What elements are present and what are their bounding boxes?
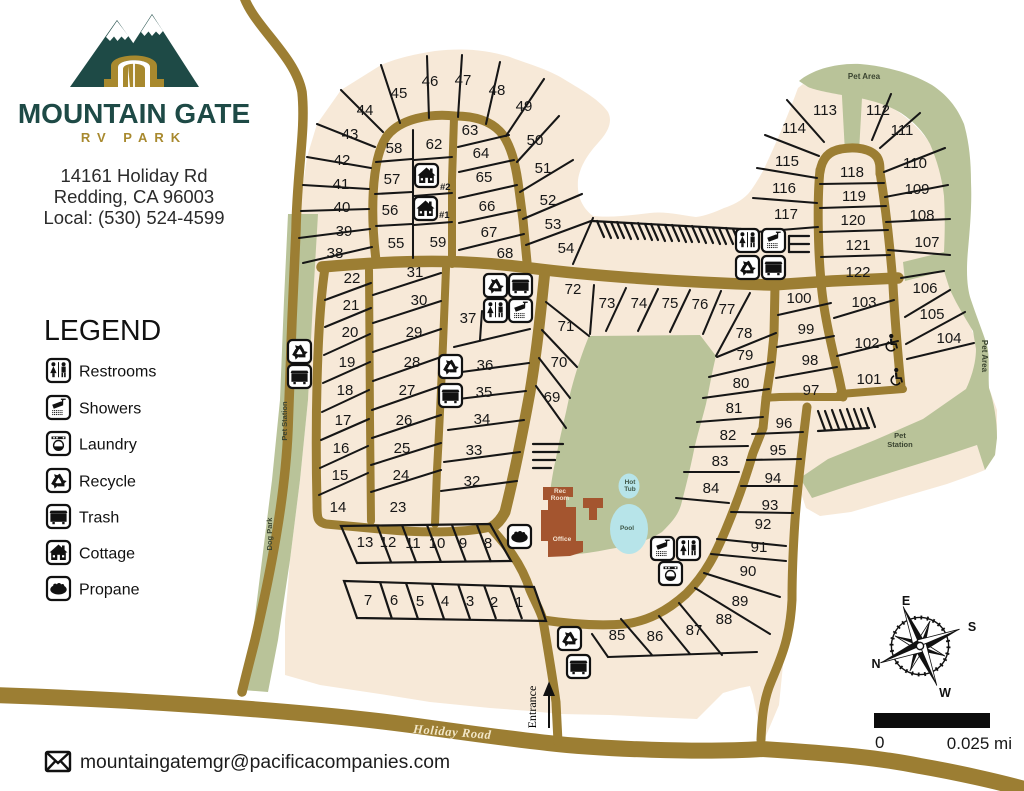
svg-text:Pet Area: Pet Area <box>848 72 881 81</box>
svg-text:Redding, CA 96003: Redding, CA 96003 <box>54 186 214 207</box>
svg-text:80: 80 <box>733 375 750 392</box>
svg-text:59: 59 <box>430 234 447 251</box>
svg-text:81: 81 <box>726 400 743 417</box>
svg-text:2: 2 <box>490 594 498 611</box>
svg-text:45: 45 <box>391 85 408 102</box>
svg-text:85: 85 <box>609 627 626 644</box>
svg-text:52: 52 <box>540 192 557 209</box>
svg-text:12: 12 <box>380 534 397 551</box>
svg-text:11: 11 <box>405 535 421 552</box>
svg-text:63: 63 <box>462 122 479 139</box>
svg-text:65: 65 <box>476 169 493 186</box>
svg-text:92: 92 <box>755 516 772 533</box>
svg-text:31: 31 <box>407 264 424 281</box>
svg-text:35: 35 <box>476 384 493 401</box>
svg-text:38: 38 <box>327 245 344 262</box>
svg-text:84: 84 <box>703 480 720 497</box>
svg-text:18: 18 <box>337 382 354 399</box>
svg-text:Cottage: Cottage <box>79 546 135 563</box>
svg-text:119: 119 <box>842 188 866 205</box>
svg-text:62: 62 <box>426 136 443 153</box>
svg-text:20: 20 <box>342 324 359 341</box>
svg-text:Recycle: Recycle <box>79 474 136 491</box>
svg-text:Tub: Tub <box>624 486 635 493</box>
svg-text:107: 107 <box>914 234 939 251</box>
svg-text:43: 43 <box>342 126 359 143</box>
svg-text:N: N <box>871 657 880 671</box>
svg-text:50: 50 <box>527 132 544 149</box>
svg-text:8: 8 <box>484 535 492 552</box>
svg-text:mountaingatemgr@pacificacompan: mountaingatemgr@pacificacompanies.com <box>80 752 450 773</box>
svg-text:Propane: Propane <box>79 582 140 599</box>
svg-text:Rec: Rec <box>554 488 566 495</box>
svg-text:RV PARK: RV PARK <box>81 130 187 145</box>
svg-text:108: 108 <box>909 207 934 224</box>
svg-text:E: E <box>902 594 910 608</box>
svg-text:82: 82 <box>720 427 737 444</box>
svg-text:10: 10 <box>429 535 446 552</box>
svg-text:102: 102 <box>854 335 879 352</box>
svg-text:Laundry: Laundry <box>79 437 137 454</box>
svg-text:Office: Office <box>553 536 572 543</box>
svg-text:Restrooms: Restrooms <box>79 364 156 381</box>
svg-text:71: 71 <box>558 318 575 335</box>
svg-text:121: 121 <box>845 237 870 254</box>
svg-text:46: 46 <box>422 73 439 90</box>
svg-text:21: 21 <box>343 297 360 314</box>
svg-text:86: 86 <box>647 628 664 645</box>
svg-text:13: 13 <box>357 534 374 551</box>
svg-text:25: 25 <box>394 440 411 457</box>
svg-text:103: 103 <box>851 294 876 311</box>
svg-text:W: W <box>939 686 951 700</box>
svg-text:104: 104 <box>936 330 961 347</box>
svg-text:LEGEND: LEGEND <box>44 315 161 347</box>
svg-text:Dog Park: Dog Park <box>265 517 274 551</box>
svg-text:51: 51 <box>535 160 552 177</box>
svg-text:14161 Holiday Rd: 14161 Holiday Rd <box>60 165 207 186</box>
svg-text:76: 76 <box>692 296 709 313</box>
svg-text:30: 30 <box>411 292 428 309</box>
svg-text:#2: #2 <box>440 182 451 193</box>
svg-text:Pet: Pet <box>894 431 906 440</box>
svg-text:83: 83 <box>712 453 729 470</box>
svg-text:93: 93 <box>762 497 779 514</box>
svg-text:3: 3 <box>466 593 474 610</box>
svg-text:33: 33 <box>466 442 483 459</box>
svg-text:14: 14 <box>330 499 347 516</box>
svg-text:67: 67 <box>481 224 498 241</box>
svg-text:116: 116 <box>772 180 796 197</box>
svg-text:Showers: Showers <box>79 401 141 418</box>
svg-text:17: 17 <box>335 412 352 429</box>
svg-text:37: 37 <box>460 310 477 327</box>
svg-text:88: 88 <box>716 611 733 628</box>
svg-text:106: 106 <box>912 280 937 297</box>
svg-text:#1: #1 <box>439 210 450 221</box>
svg-text:4: 4 <box>441 593 449 610</box>
svg-text:115: 115 <box>775 153 799 170</box>
svg-text:72: 72 <box>565 281 582 298</box>
svg-text:99: 99 <box>798 321 815 338</box>
svg-text:Local: (530) 524-4599: Local: (530) 524-4599 <box>43 207 224 228</box>
svg-text:16: 16 <box>333 440 350 457</box>
svg-text:Hot: Hot <box>625 479 637 486</box>
svg-text:0.025 mi: 0.025 mi <box>947 734 1012 753</box>
svg-text:57: 57 <box>384 171 401 188</box>
svg-text:44: 44 <box>357 102 374 119</box>
svg-text:117: 117 <box>774 206 798 223</box>
svg-text:29: 29 <box>406 324 423 341</box>
svg-text:Room: Room <box>551 495 570 502</box>
svg-text:6: 6 <box>390 592 398 609</box>
svg-text:89: 89 <box>732 593 749 610</box>
svg-text:87: 87 <box>686 622 703 639</box>
svg-text:47: 47 <box>455 72 472 89</box>
svg-text:9: 9 <box>459 535 467 552</box>
svg-text:109: 109 <box>904 181 929 198</box>
svg-text:110: 110 <box>903 155 927 172</box>
svg-text:78: 78 <box>736 325 753 342</box>
svg-text:49: 49 <box>516 98 533 115</box>
svg-text:122: 122 <box>845 264 870 281</box>
svg-text:54: 54 <box>558 240 575 257</box>
svg-text:112: 112 <box>866 102 890 119</box>
svg-text:64: 64 <box>473 145 490 162</box>
svg-text:Trash: Trash <box>79 510 119 527</box>
svg-text:5: 5 <box>416 593 424 610</box>
svg-text:118: 118 <box>840 164 864 181</box>
svg-text:42: 42 <box>334 152 351 169</box>
svg-text:74: 74 <box>631 295 648 312</box>
svg-text:Pool: Pool <box>620 525 634 532</box>
svg-text:111: 111 <box>891 122 914 139</box>
svg-text:66: 66 <box>479 198 496 215</box>
svg-text:26: 26 <box>396 412 413 429</box>
svg-text:120: 120 <box>840 212 865 229</box>
svg-text:48: 48 <box>489 82 506 99</box>
svg-text:22: 22 <box>344 270 361 287</box>
svg-text:32: 32 <box>464 473 481 490</box>
svg-text:34: 34 <box>474 411 491 428</box>
svg-text:100: 100 <box>786 290 811 307</box>
svg-text:55: 55 <box>388 235 405 252</box>
svg-text:19: 19 <box>339 354 356 371</box>
svg-text:91: 91 <box>751 539 768 556</box>
svg-text:7: 7 <box>364 592 372 609</box>
svg-text:39: 39 <box>336 223 353 240</box>
svg-text:113: 113 <box>813 102 837 119</box>
svg-text:58: 58 <box>386 140 403 157</box>
svg-text:114: 114 <box>782 120 806 137</box>
svg-text:95: 95 <box>770 442 787 459</box>
svg-text:53: 53 <box>545 216 562 233</box>
svg-text:36: 36 <box>477 357 494 374</box>
svg-text:75: 75 <box>662 295 679 312</box>
svg-text:15: 15 <box>332 467 349 484</box>
svg-text:40: 40 <box>334 199 351 216</box>
svg-text:Entrance: Entrance <box>525 686 539 729</box>
svg-text:Pet Station: Pet Station <box>280 401 289 441</box>
svg-text:70: 70 <box>551 354 568 371</box>
svg-text:101: 101 <box>856 371 881 388</box>
svg-text:41: 41 <box>333 176 350 193</box>
svg-text:24: 24 <box>393 467 410 484</box>
svg-text:Pet Area: Pet Area <box>980 340 989 373</box>
svg-text:96: 96 <box>776 415 793 432</box>
svg-text:27: 27 <box>399 382 416 399</box>
svg-text:98: 98 <box>802 352 819 369</box>
svg-text:68: 68 <box>497 245 514 262</box>
svg-text:S: S <box>968 620 976 634</box>
svg-text:Station: Station <box>887 440 913 449</box>
svg-text:90: 90 <box>740 563 757 580</box>
svg-text:1: 1 <box>515 594 523 611</box>
svg-text:97: 97 <box>803 382 820 399</box>
svg-text:28: 28 <box>404 354 421 371</box>
svg-text:56: 56 <box>382 202 399 219</box>
svg-text:105: 105 <box>919 306 944 323</box>
svg-text:69: 69 <box>544 389 561 406</box>
svg-text:0: 0 <box>875 733 884 752</box>
svg-text:MOUNTAIN GATE: MOUNTAIN GATE <box>18 98 250 129</box>
svg-text:73: 73 <box>599 295 616 312</box>
svg-text:Holiday Road: Holiday Road <box>412 722 492 742</box>
svg-text:77: 77 <box>719 301 736 318</box>
svg-text:94: 94 <box>765 470 782 487</box>
svg-text:79: 79 <box>737 347 754 364</box>
svg-text:23: 23 <box>390 499 407 516</box>
